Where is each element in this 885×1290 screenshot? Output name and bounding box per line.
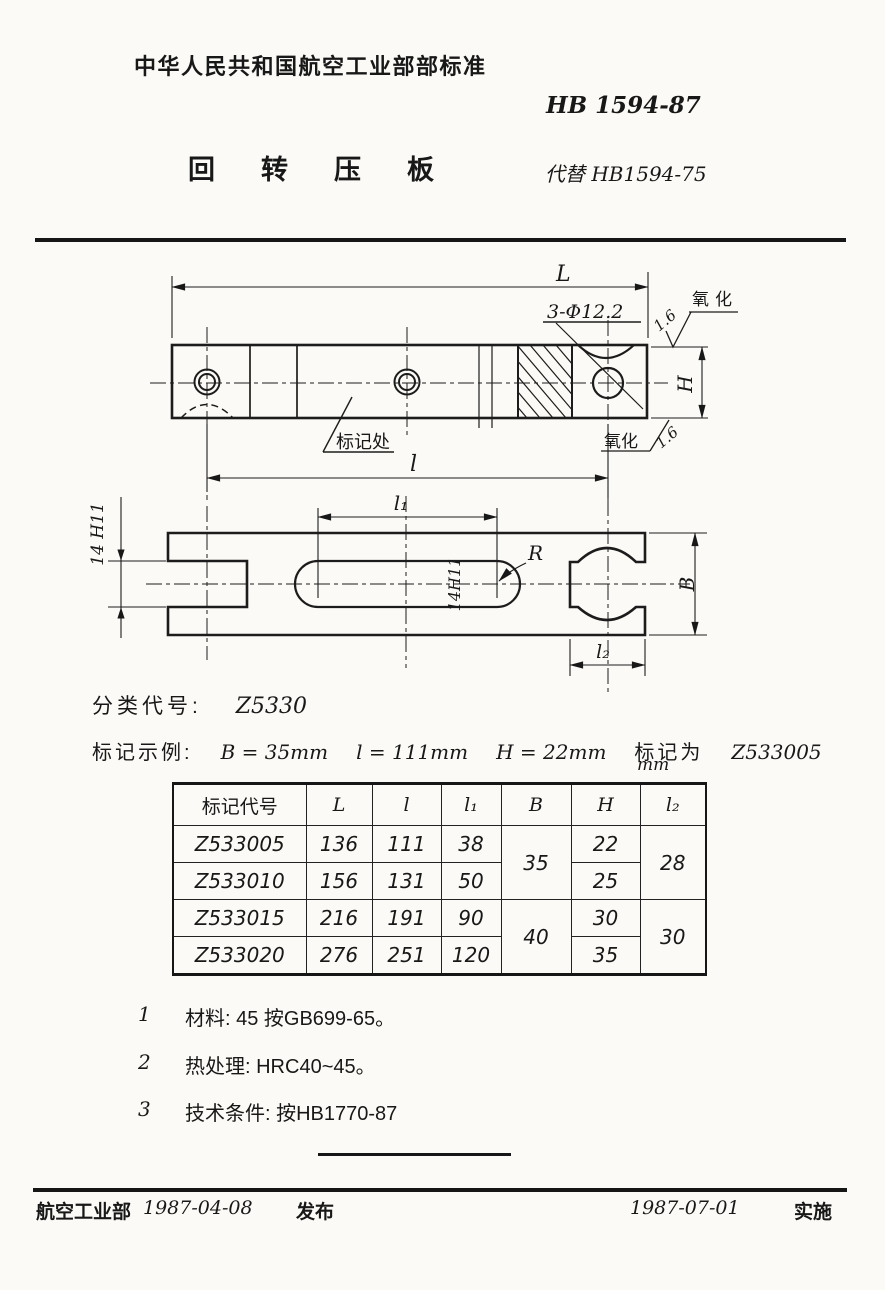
cell-l: 111 (372, 826, 441, 863)
marking-example-line: 标记示例: B = 35mm l = 111mm H = 22mm 标记为 Z5… (92, 736, 822, 765)
note-text: 热处理: HRC40~45。 (185, 1050, 376, 1079)
table-row: Z533010 156 131 50 25 (173, 863, 706, 900)
col-header-l2: l₂ (640, 784, 706, 826)
marking-example-l: l = 111mm (356, 740, 468, 764)
note-item: 2 热处理: HRC40~45。 (138, 1050, 376, 1079)
col-header-code: 标记代号 (173, 784, 306, 826)
marking-callout-label: 标记处 (336, 432, 390, 452)
cell-B-merged: 35 (501, 826, 571, 900)
cell-code: Z533005 (173, 826, 306, 863)
holes-callout-label: 3-Φ12.2 (547, 301, 623, 323)
classification-value: Z5330 (236, 694, 307, 719)
table-row: Z533015 216 191 90 40 30 30 (173, 900, 706, 937)
finish-top-note: 氧化 (692, 290, 738, 309)
cell-L: 276 (306, 937, 372, 975)
note-number: 1 (138, 1002, 185, 1031)
note-item: 3 技术条件: 按HB1770-87 (138, 1097, 397, 1126)
cell-B-merged: 40 (501, 900, 571, 975)
slot-tolerance-label: 14H11 (445, 557, 464, 612)
table-header-row: 标记代号 L l l₁ B H l₂ (173, 784, 706, 826)
dim-H-label: H (673, 375, 697, 394)
dim-l (207, 424, 608, 498)
cell-l1: 50 (441, 863, 501, 900)
cell-l2-merged: 30 (640, 900, 706, 975)
footer-impl-label: 实施 (794, 1197, 832, 1224)
footer-release-date: 1987-04-08 (143, 1197, 253, 1219)
front-view: L l H 3-Φ12.2 氧化 1.6 氧化 (150, 262, 738, 505)
cell-code: Z533010 (173, 863, 306, 900)
fork-arrow-top (117, 550, 124, 561)
note-number: 2 (138, 1050, 185, 1079)
note-item: 1 材料: 45 按GB699-65。 (138, 1002, 395, 1031)
header-divider (35, 238, 846, 242)
cell-code: Z533015 (173, 900, 306, 937)
end-divider (318, 1153, 511, 1156)
cell-H: 35 (571, 937, 640, 975)
footer-release-label: 发布 (296, 1197, 334, 1224)
col-header-H: H (571, 784, 640, 826)
technical-drawing: L l H 3-Φ12.2 氧化 1.6 氧化 (0, 250, 885, 695)
note-text: 技术条件: 按HB1770-87 (185, 1097, 397, 1126)
finish-top-value: 1.6 (650, 306, 680, 335)
cell-L: 136 (306, 826, 372, 863)
classification-label: 分类代号: (92, 695, 202, 718)
radius-label: R (527, 541, 543, 565)
standard-org-title: 中华人民共和国航空工业部部标准 (134, 49, 487, 81)
cell-l: 191 (372, 900, 441, 937)
standard-number: HB 1594-87 (546, 92, 701, 119)
marking-example-H: H = 22mm (496, 740, 606, 764)
dim-l2-label: l₂ (596, 641, 610, 663)
classification-line: 分类代号: Z5330 (92, 690, 307, 720)
table-unit-label: mm (637, 755, 669, 775)
dim-l-label: l (410, 452, 417, 477)
col-header-B: B (501, 784, 571, 826)
marking-example-code: Z533005 (731, 740, 821, 764)
dim-fork-label: 14 H11 (88, 502, 108, 566)
col-header-l1: l₁ (441, 784, 501, 826)
replaces-note: 代替 HB1594-75 (545, 158, 707, 187)
marking-example-label: 标记示例: (92, 736, 193, 765)
cell-H: 25 (571, 863, 640, 900)
cell-H: 22 (571, 826, 640, 863)
top-recess-arc (578, 345, 634, 358)
col-header-L: L (306, 784, 372, 826)
cell-l: 251 (372, 937, 441, 975)
dimension-table: 标记代号 L l l₁ B H l₂ Z533005 136 111 38 35… (172, 782, 707, 976)
cell-L: 156 (306, 863, 372, 900)
plan-view: l₁ R 14H11 14 H11 B (88, 491, 707, 692)
table-row: Z533005 136 111 38 35 22 28 (173, 826, 706, 863)
cell-L: 216 (306, 900, 372, 937)
cell-code: Z533020 (173, 937, 306, 975)
front-view-body (172, 345, 647, 418)
dim-fork (108, 497, 166, 638)
cell-H: 30 (571, 900, 640, 937)
fork-arrow-bottom (117, 607, 124, 618)
note-number: 3 (138, 1097, 185, 1126)
standard-document-page: { "header": { "org": "中华人民共和国航空工业部部标准", … (0, 0, 885, 1290)
page-title: 回转压板 (188, 148, 480, 187)
dim-l1-label: l₁ (394, 491, 408, 515)
table-row: Z533020 276 251 120 35 (173, 937, 706, 975)
dim-L-label: L (555, 262, 571, 287)
footer-org: 航空工业部 (36, 1197, 131, 1224)
cell-l: 131 (372, 863, 441, 900)
dim-B-label: B (675, 577, 699, 593)
note-text: 材料: 45 按GB699-65。 (185, 1002, 395, 1031)
cell-l1: 90 (441, 900, 501, 937)
footer-divider (33, 1188, 847, 1192)
cell-l1: 120 (441, 937, 501, 975)
footer-impl-date: 1987-07-01 (630, 1197, 740, 1219)
finish-bottom-note: 氧化 (604, 432, 638, 451)
cell-l2-merged: 28 (640, 826, 706, 900)
cell-l1: 38 (441, 826, 501, 863)
col-header-l: l (372, 784, 441, 826)
marking-example-B: B = 35mm (221, 740, 329, 764)
finish-bottom-value: 1.6 (652, 423, 682, 452)
